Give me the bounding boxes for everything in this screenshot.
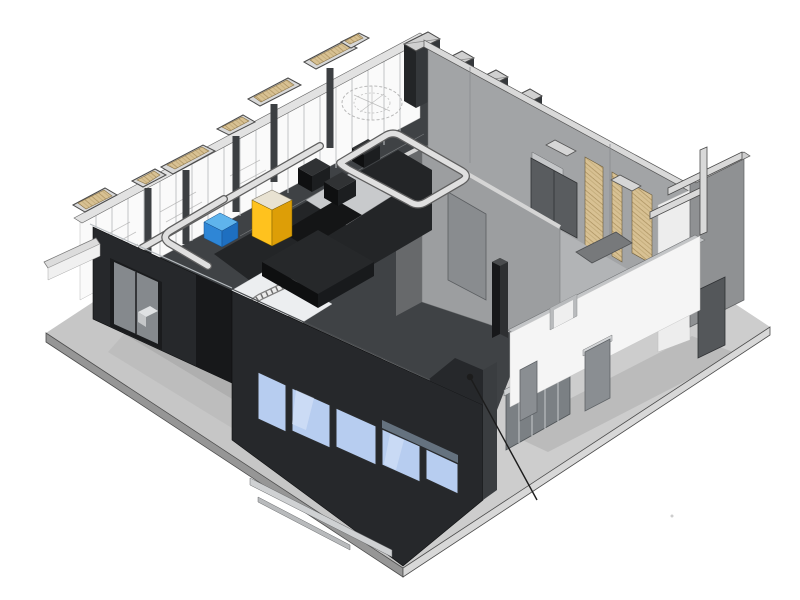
leader-endpoint-dot [467,374,473,380]
column-face-left [492,258,500,338]
column-face-right [500,258,508,338]
entry-recess [196,274,232,383]
white-wall-door[interactable] [585,339,610,411]
white-wall-door-small[interactable] [520,361,537,421]
viewport-3d-model [0,0,800,600]
column-face-left [404,44,416,108]
freestanding-column [492,258,508,338]
axonometric-cutaway-render [0,0,800,600]
railing-post [700,147,707,235]
wood-section-strip [632,184,652,264]
render-artifact-speck [671,515,674,518]
fin-door[interactable] [698,277,725,358]
yellow-equipment-box [252,190,292,246]
facade-right-return [483,362,497,500]
